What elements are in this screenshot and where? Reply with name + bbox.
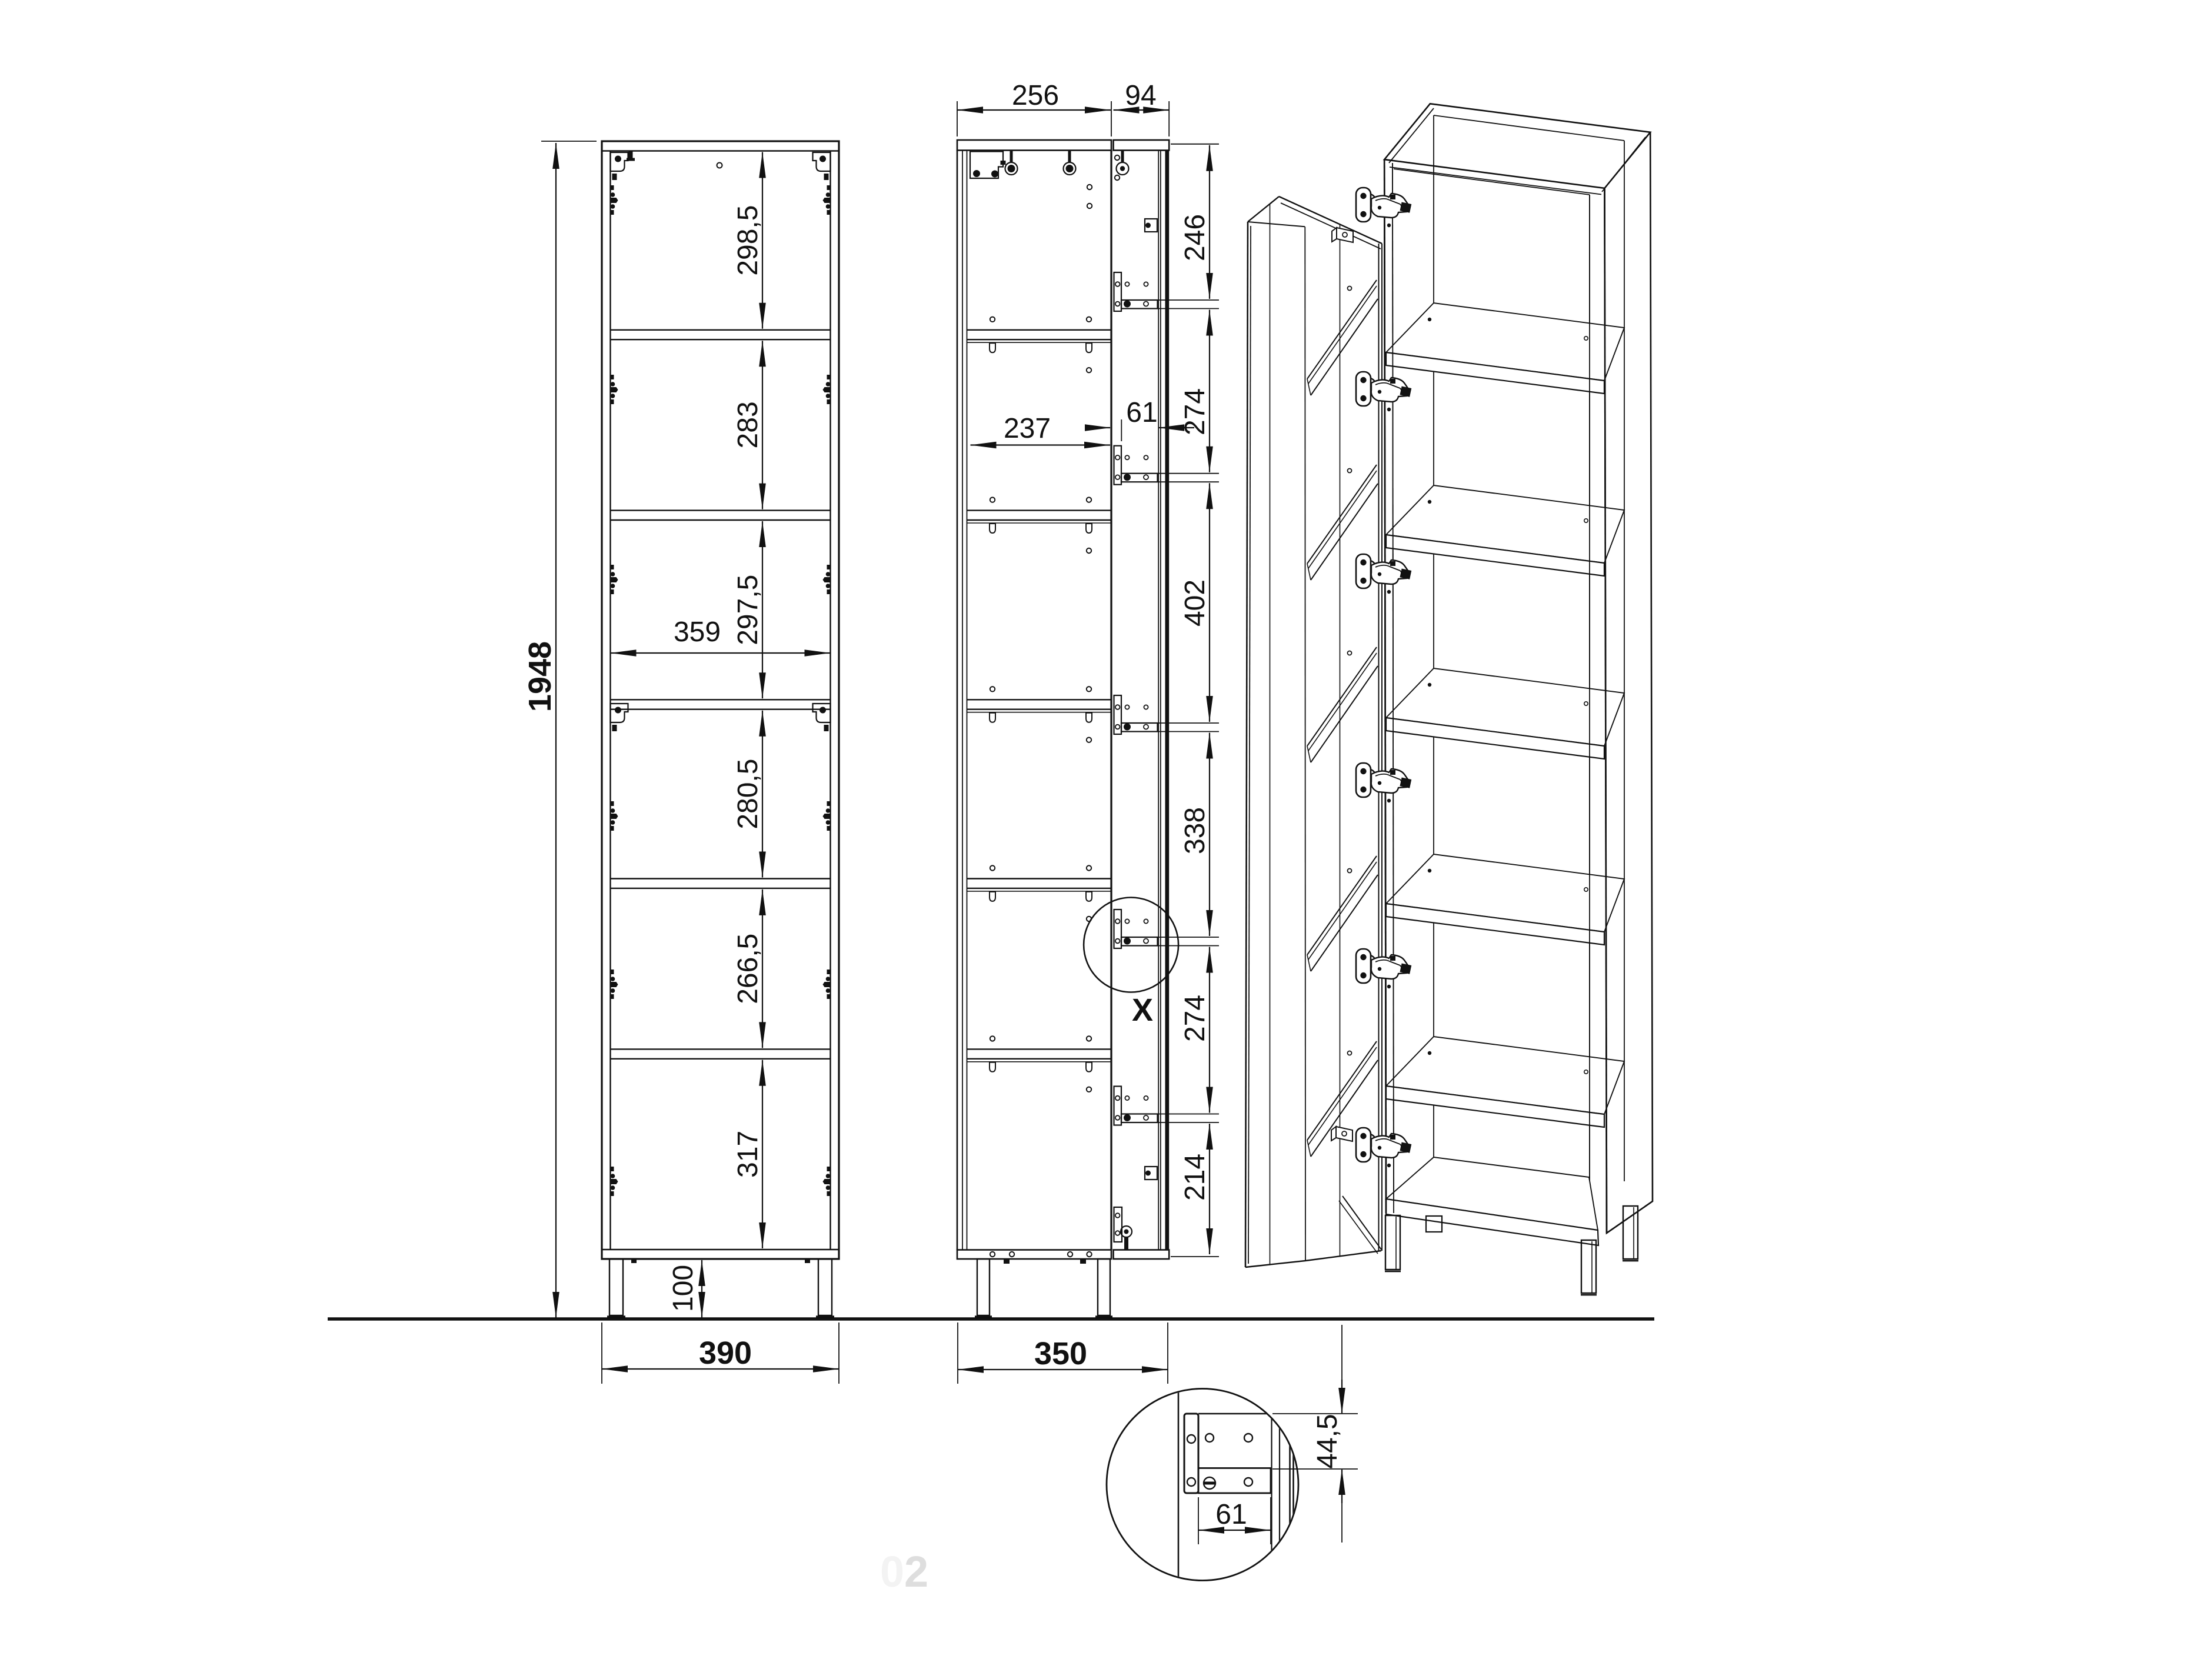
svg-text:390: 390	[699, 1335, 752, 1371]
svg-text:266,5: 266,5	[732, 934, 764, 1004]
svg-text:359: 359	[674, 617, 721, 648]
svg-text:297,5: 297,5	[732, 575, 764, 645]
svg-text:0: 0	[880, 1547, 904, 1596]
svg-text:44,5: 44,5	[1312, 1414, 1343, 1468]
svg-text:2: 2	[904, 1547, 928, 1596]
svg-text:350: 350	[1034, 1336, 1087, 1371]
svg-text:X: X	[1132, 992, 1153, 1028]
svg-text:61: 61	[1126, 397, 1157, 428]
svg-text:280,5: 280,5	[732, 759, 764, 829]
svg-text:338: 338	[1180, 807, 1211, 854]
svg-text:237: 237	[1004, 413, 1051, 444]
svg-text:298,5: 298,5	[732, 205, 764, 276]
svg-text:94: 94	[1125, 80, 1156, 111]
svg-text:61: 61	[1215, 1499, 1247, 1530]
svg-text:256: 256	[1012, 80, 1059, 111]
svg-text:283: 283	[732, 401, 764, 448]
svg-text:1948: 1948	[522, 641, 558, 712]
svg-text:402: 402	[1180, 579, 1211, 627]
svg-text:100: 100	[668, 1265, 699, 1312]
svg-text:274: 274	[1180, 388, 1211, 435]
svg-text:214: 214	[1180, 1154, 1211, 1201]
svg-text:274: 274	[1180, 995, 1211, 1042]
svg-text:317: 317	[732, 1131, 764, 1178]
svg-text:246: 246	[1180, 214, 1211, 261]
